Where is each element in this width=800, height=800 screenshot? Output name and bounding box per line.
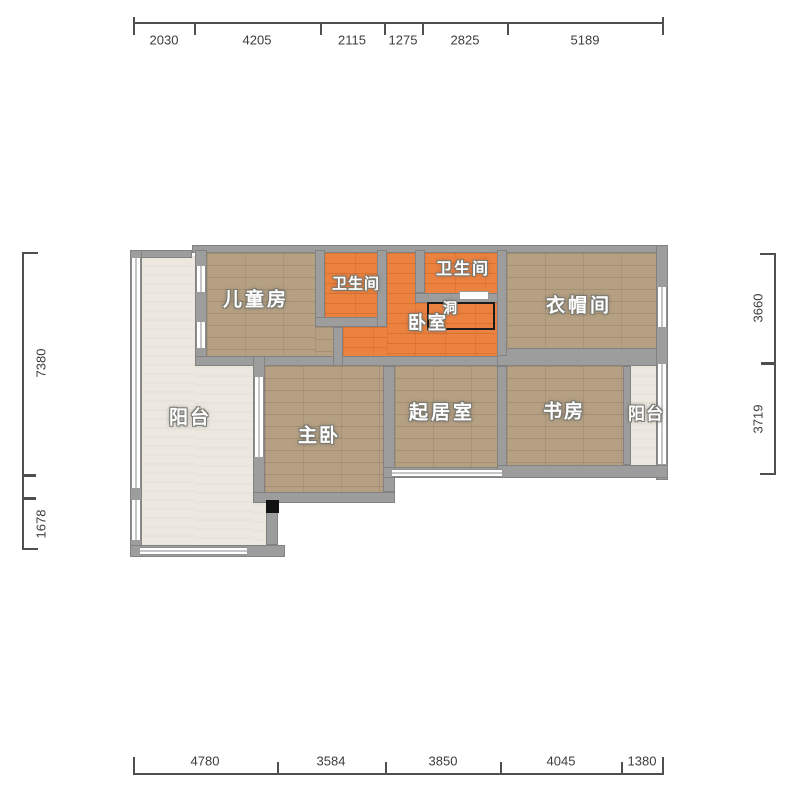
dim-bottom-3850: 3850 (429, 754, 458, 769)
wall (497, 348, 668, 366)
room-label-bath-left: 卫生间 (332, 273, 380, 294)
room-label-study: 书房 (543, 397, 585, 424)
dimension-line-bottom (133, 773, 663, 775)
wall (497, 366, 507, 467)
room-bedroom-floor (387, 253, 415, 356)
dim-top-4205: 4205 (243, 33, 272, 48)
dim-bottom-3584: 3584 (317, 754, 346, 769)
wall (315, 317, 383, 327)
dimension-tick (22, 252, 38, 254)
dimension-tick (507, 22, 509, 35)
wall (415, 250, 425, 293)
dimension-tick (133, 17, 135, 35)
wall (192, 245, 668, 253)
dim-top-1275: 1275 (389, 33, 418, 48)
wall (497, 250, 507, 356)
room-label-balcony-right: 阳台 (628, 400, 664, 425)
dim-left-1678: 1678 (34, 510, 49, 539)
dimension-tick (761, 362, 775, 365)
window (254, 377, 264, 457)
dim-bottom-4045: 4045 (547, 754, 576, 769)
window (657, 287, 667, 327)
dimension-tick (621, 762, 623, 775)
room-children-floor (315, 327, 333, 356)
room-label-cloakroom: 衣帽间 (546, 291, 612, 318)
dim-right-3660: 3660 (751, 294, 766, 323)
window (131, 500, 141, 540)
dim-left-7380: 7380 (34, 349, 49, 378)
dim-top-2825: 2825 (451, 33, 480, 48)
dimension-line-top (133, 22, 663, 24)
room-label-balcony-left: 阳台 (169, 403, 211, 430)
dimension-tick (760, 253, 776, 255)
dimension-tick (662, 757, 664, 775)
dim-top-2030: 2030 (150, 33, 179, 48)
dim-right-3719: 3719 (751, 405, 766, 434)
dimension-tick (277, 762, 279, 775)
window (131, 258, 141, 488)
dimension-tick (194, 22, 196, 35)
wall (315, 250, 325, 327)
window (196, 266, 206, 292)
wall (333, 327, 343, 366)
window (196, 322, 206, 348)
floor-plan-canvas: 2030 4205 2115 1275 2825 5189 4780 3584 … (0, 0, 800, 800)
dim-top-2115: 2115 (338, 33, 366, 48)
dimension-tick (500, 762, 502, 775)
window (140, 547, 247, 555)
room-balcony-left-floor (138, 256, 195, 545)
dimension-tick (22, 497, 36, 500)
wall-opening (459, 291, 489, 300)
dimension-tick (422, 22, 424, 35)
dim-bottom-4780: 4780 (191, 754, 220, 769)
dimension-tick (133, 757, 135, 775)
dimension-tick (384, 22, 386, 35)
room-label-bath-right: 卫生间 (436, 255, 490, 279)
column-marker (266, 500, 279, 513)
dimension-tick (320, 22, 322, 35)
dimension-tick (760, 473, 776, 475)
dimension-tick (385, 762, 387, 775)
room-label-living: 起居室 (409, 398, 475, 425)
dimension-tick (22, 548, 38, 550)
room-label-hole: 洞 (443, 298, 457, 318)
window (392, 469, 502, 477)
dimension-line-left (22, 252, 24, 550)
room-balcony-left-floor (195, 366, 253, 545)
room-label-master: 主卧 (298, 421, 340, 448)
dimension-tick (662, 17, 664, 35)
dimension-tick (22, 474, 36, 477)
room-label-bedroom: 卧室 (408, 309, 448, 335)
wall (195, 356, 507, 366)
dim-bottom-1380: 1380 (628, 754, 657, 769)
room-label-children: 儿童房 (223, 285, 289, 312)
room-bedroom-floor (343, 327, 387, 356)
dim-top-5189: 5189 (571, 33, 600, 48)
wall (497, 465, 668, 478)
